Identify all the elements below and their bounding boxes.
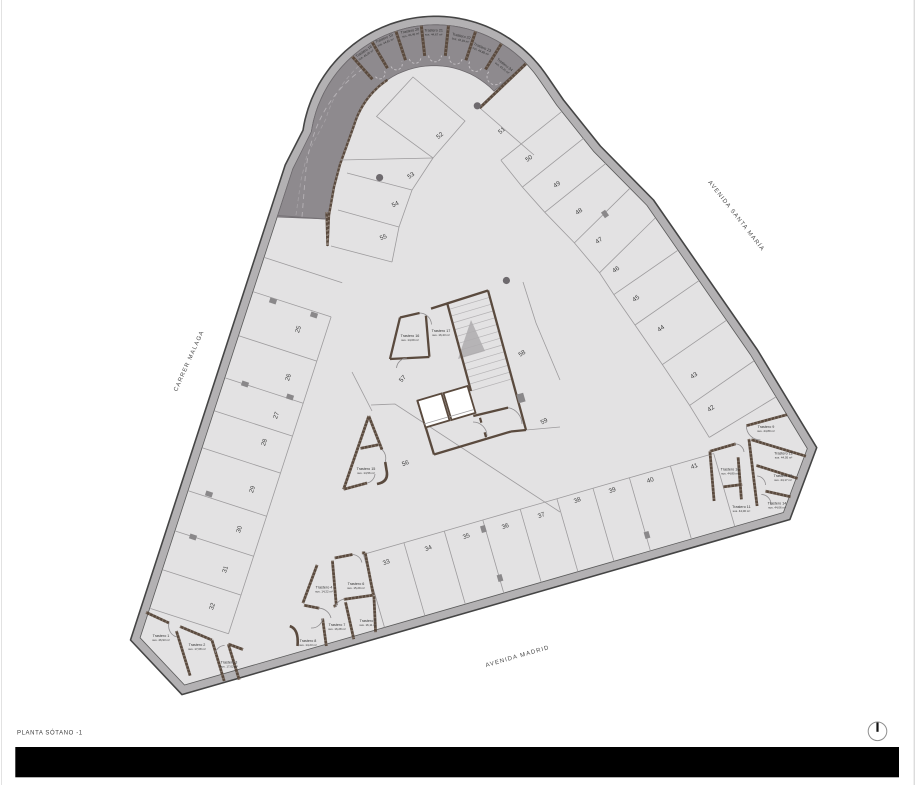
svg-text:sus. 44,17 m²: sus. 44,17 m² — [774, 478, 792, 482]
svg-text:sus. 16,11 m²: sus. 16,11 m² — [359, 623, 376, 627]
svg-text:sus. 44,89 m²: sus. 44,89 m² — [757, 429, 775, 433]
svg-text:sus. 44,00 m²: sus. 44,00 m² — [733, 509, 751, 513]
svg-text:sus. 14,22 m²: sus. 14,22 m² — [315, 590, 333, 594]
svg-text:sus. 17,02 m²: sus. 17,02 m² — [220, 665, 238, 669]
svg-text:sus. 16,28 m²: sus. 16,28 m² — [328, 627, 346, 631]
svg-text:sus. 15,29 m²: sus. 15,29 m² — [347, 586, 365, 590]
svg-text:sus. 44,67 m²: sus. 44,67 m² — [425, 32, 443, 36]
svg-text:sus. 14,09 m²: sus. 14,09 m² — [401, 338, 419, 342]
svg-text:sus. 44,05 m²: sus. 44,05 m² — [775, 455, 793, 459]
svg-text:sus. 44,80 m²: sus. 44,80 m² — [721, 472, 739, 476]
svg-text:sus. 14,56 m²: sus. 14,56 m² — [357, 471, 375, 475]
svg-text:sus. 17,08 m²: sus. 17,08 m² — [188, 647, 206, 651]
svg-text:sus. 44,06 m²: sus. 44,06 m² — [768, 506, 786, 510]
svg-text:sus. 14,23 m²: sus. 14,23 m² — [299, 643, 317, 647]
svg-text:PLANTA SÓTANO -1: PLANTA SÓTANO -1 — [17, 730, 83, 737]
svg-text:sus. 16,43 m²: sus. 16,43 m² — [432, 333, 450, 337]
svg-text:sus. 46,93 m²: sus. 46,93 m² — [152, 638, 170, 642]
